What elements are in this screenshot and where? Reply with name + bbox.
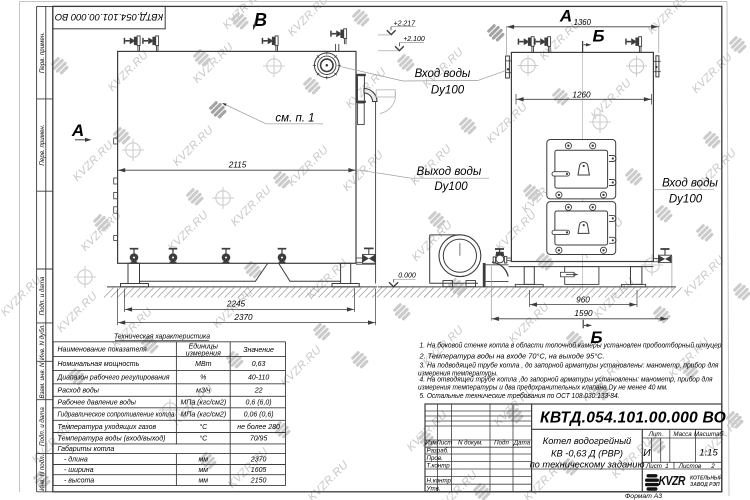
svg-text:1360: 1360 [574,18,592,27]
svg-text:мм: мм [198,467,208,474]
svg-text:70/95: 70/95 [250,436,268,443]
svg-text:Взам. инв. N: Взам. инв. N [39,362,46,399]
svg-text:Подп. и дата: Подп. и дата [39,276,46,315]
svg-text:960: 960 [576,295,590,304]
svg-text:1: 1 [665,463,668,470]
svg-text:1590: 1590 [574,309,593,318]
svg-text:1. На боковой стенке котла в: 1. На боковой стенке котла в области топ… [420,341,722,350]
svg-text:Н.контр: Н.контр [427,478,452,485]
svg-text:А: А [559,7,572,26]
svg-text:А: А [71,121,84,140]
svg-text:Подп. и дата: Подп. и дата [39,407,46,446]
svg-text:Наименование показателя: Наименование показателя [58,347,148,354]
svg-text:1605: 1605 [251,467,267,474]
svg-text:0.000: 0.000 [398,273,416,280]
svg-text:Техническая характеристика: Техническая характеристика [114,332,210,341]
svg-text:°С: °С [199,435,208,443]
svg-text:- ширина: - ширина [64,467,94,474]
svg-text:- длина: - длина [64,456,88,464]
svg-text:Dy100: Dy100 [434,181,468,193]
svg-text:5. Остальные технические треб: 5. Остальные технические требования по О… [420,391,620,400]
svg-text:- высота: - высота [64,478,94,485]
svg-text:Перв. примен.: Перв. примен. [39,32,46,73]
svg-text:Пров.: Пров. [427,455,443,462]
svg-text:Инв. N дубл.: Инв. N дубл. [39,324,46,360]
svg-text:см. п. 1: см. п. 1 [275,113,314,125]
svg-text:Лист: Лист [645,463,662,470]
svg-text:Значение: Значение [243,347,274,354]
svg-text:KVZR: KVZR [659,474,686,488]
svg-text:2. Температура воды на входе: 2. Температура воды на входе 70°С, на вы… [419,351,605,360]
svg-text:Формат А3: Формат А3 [625,493,662,500]
svg-text:N докум.: N докум. [458,440,483,447]
svg-text:1260: 1260 [572,91,591,100]
svg-text:КВ -0,63 Д (РВР): КВ -0,63 Д (РВР) [551,449,623,459]
svg-text:Dy100: Dy100 [669,194,703,206]
svg-text:КВТД.054.101.00.000 ВО: КВТД.054.101.00.000 ВО [54,11,163,22]
svg-text:Температура уходящих газов: Температура уходящих газов [58,423,157,431]
svg-text:Вход воды: Вход воды [662,178,718,190]
svg-text:Лит.: Лит. [648,431,664,438]
svg-text:%: % [200,375,206,382]
svg-text:м3/ч: м3/ч [196,388,211,395]
svg-text:Лист: Лист [436,440,453,447]
svg-text:2370: 2370 [250,457,267,464]
svg-text:Выход воды: Выход воды [417,166,482,178]
svg-text:2150: 2150 [250,478,267,485]
svg-text:2370: 2370 [233,313,253,322]
svg-text:2245: 2245 [226,300,246,309]
svg-text:Подп: Подп [494,440,509,447]
svg-text:КОТЕЛЬНЫЙ: КОТЕЛЬНЫЙ [690,474,723,482]
svg-text:мм: мм [198,457,208,464]
svg-text:Вход воды: Вход воды [415,68,471,80]
svg-text:МПа (кгс/см2): МПа (кгс/см2) [180,412,226,419]
svg-text:Температура воды (вход/выход): Температура воды (вход/выход) [58,435,166,443]
svg-text:Номинальная мощность: Номинальная мощность [58,361,140,368]
svg-text:ЗАВОД РЭП: ЗАВОД РЭП [690,482,720,488]
svg-text:Dy100: Dy100 [431,85,465,97]
svg-text:Котел водогрейный: Котел водогрейный [543,436,631,446]
svg-text:Т.контр: Т.контр [427,463,451,470]
svg-text:0,6 (6,0): 0,6 (6,0) [246,400,272,407]
svg-text:мм: мм [198,478,208,485]
svg-text:МВт: МВт [195,361,212,368]
svg-text:КВТД.054.101.00.000 ВО: КВТД.054.101.00.000 ВО [540,410,727,427]
svg-text:Инв. N подл.: Инв. N подл. [39,455,46,491]
svg-text:Диапазон рабочего регулировани: Диапазон рабочего регулирования [57,374,170,382]
svg-text:Разраб.: Разраб. [427,448,449,455]
svg-text:Листов: Листов [678,463,702,470]
svg-text:Утв.: Утв. [426,485,441,492]
svg-text:2115: 2115 [228,160,247,169]
svg-text:Габариты котла: Габариты котла [58,445,115,453]
svg-text:40-110: 40-110 [248,375,269,382]
svg-text:Гидравлическое сопротивление к: Гидравлическое сопротивление котла [58,411,175,419]
svg-text:не более 280: не более 280 [237,423,280,431]
svg-text:0,06 (0,6): 0,06 (0,6) [244,412,274,419]
svg-text:Масштаб: Масштаб [694,431,723,438]
svg-text:В: В [254,10,267,30]
svg-text:1:15: 1:15 [699,448,718,459]
svg-text:+2.100: +2.100 [403,36,425,43]
svg-text:2: 2 [710,463,715,470]
svg-text:Масса: Масса [673,431,692,438]
svg-text:22: 22 [254,388,263,395]
svg-text:Б: Б [592,27,604,46]
svg-text:МПа (кгс/см2): МПа (кгс/см2) [180,400,226,407]
svg-text:Рабочее давление воды: Рабочее давление воды [58,399,137,407]
svg-text:И: И [643,447,651,459]
svg-text:Дата: Дата [513,440,531,447]
svg-text:Единицы: Единицы [189,343,219,351]
svg-text:измерения: измерения [186,351,221,358]
svg-text:Перв. примен.: Перв. примен. [39,124,46,165]
svg-text:°С: °С [199,423,208,431]
svg-text:Расход воды: Расход воды [58,387,100,395]
svg-text:по техническому заданию: по техническому заданию [530,459,645,469]
svg-text:0,63: 0,63 [252,361,266,368]
